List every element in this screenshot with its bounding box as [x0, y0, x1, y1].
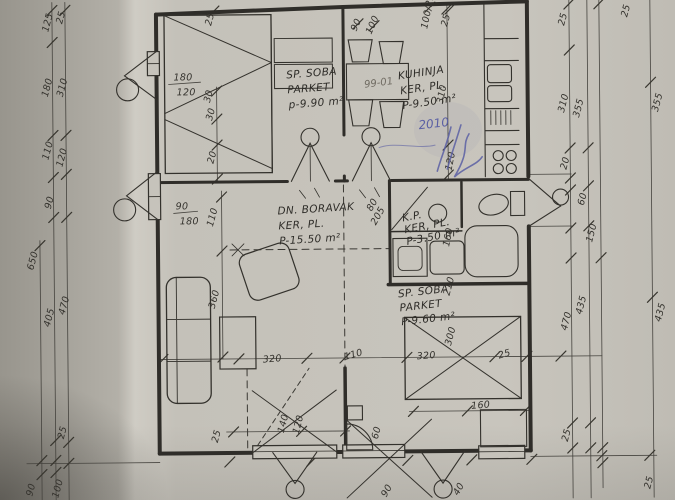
window-bottom-1	[253, 445, 337, 459]
dim-label: 320	[416, 350, 436, 362]
paper-background	[0, 0, 675, 500]
window-bottom-3	[479, 445, 525, 458]
dim-label: 180	[180, 216, 199, 227]
floorplan-scan-photo: SP. SOBAPARKETp-9.90 m²KUHINJAKER, PL.P-…	[0, 0, 675, 500]
dim-label: 180	[173, 72, 192, 83]
interior-wall-bottom	[345, 368, 346, 452]
window-bottom-2	[343, 444, 405, 458]
floorplan-svg: SP. SOBAPARKETp-9.90 m²KUHINJAKER, PL.P-…	[0, 0, 675, 500]
bathroom-wall-left	[389, 181, 390, 285]
dim-label: 160	[471, 399, 491, 411]
bathroom-wall-bottom	[388, 283, 529, 284]
dim-label: 120	[177, 87, 196, 98]
dim-label: 90	[176, 201, 189, 212]
window-left-2	[148, 174, 160, 220]
window-left-1	[147, 52, 159, 76]
dim-label: 320	[262, 353, 282, 365]
